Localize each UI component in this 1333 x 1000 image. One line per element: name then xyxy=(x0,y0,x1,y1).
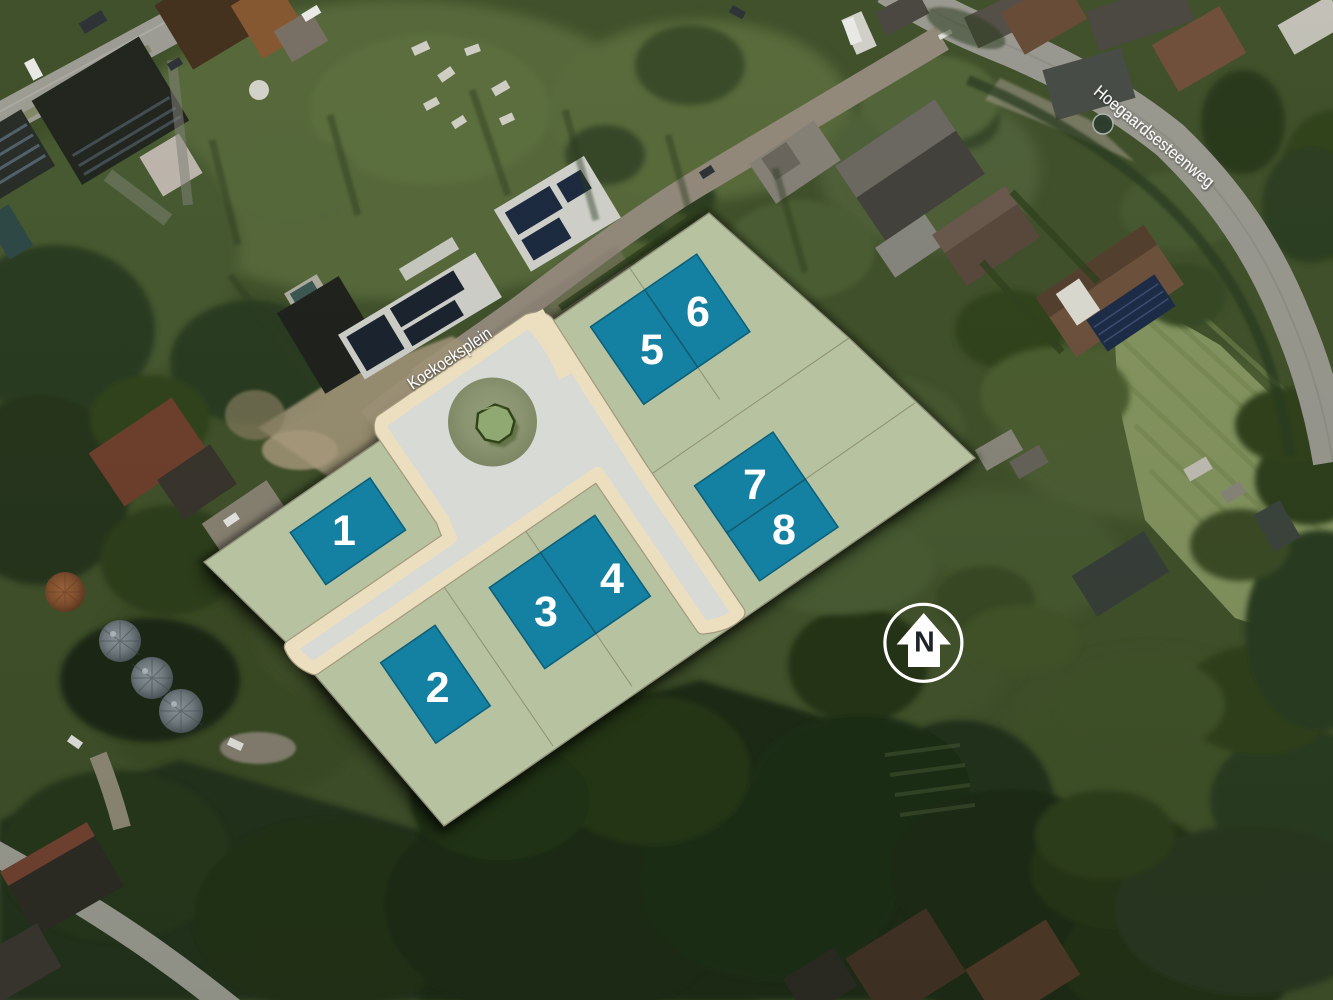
svg-text:1: 1 xyxy=(332,507,356,555)
svg-text:N: N xyxy=(914,627,935,659)
svg-text:6: 6 xyxy=(686,288,710,336)
svg-text:4: 4 xyxy=(600,555,624,603)
svg-text:5: 5 xyxy=(640,326,664,374)
svg-text:2: 2 xyxy=(426,664,450,712)
svg-text:8: 8 xyxy=(772,506,796,554)
svg-text:3: 3 xyxy=(534,588,558,636)
svg-text:7: 7 xyxy=(743,461,767,509)
